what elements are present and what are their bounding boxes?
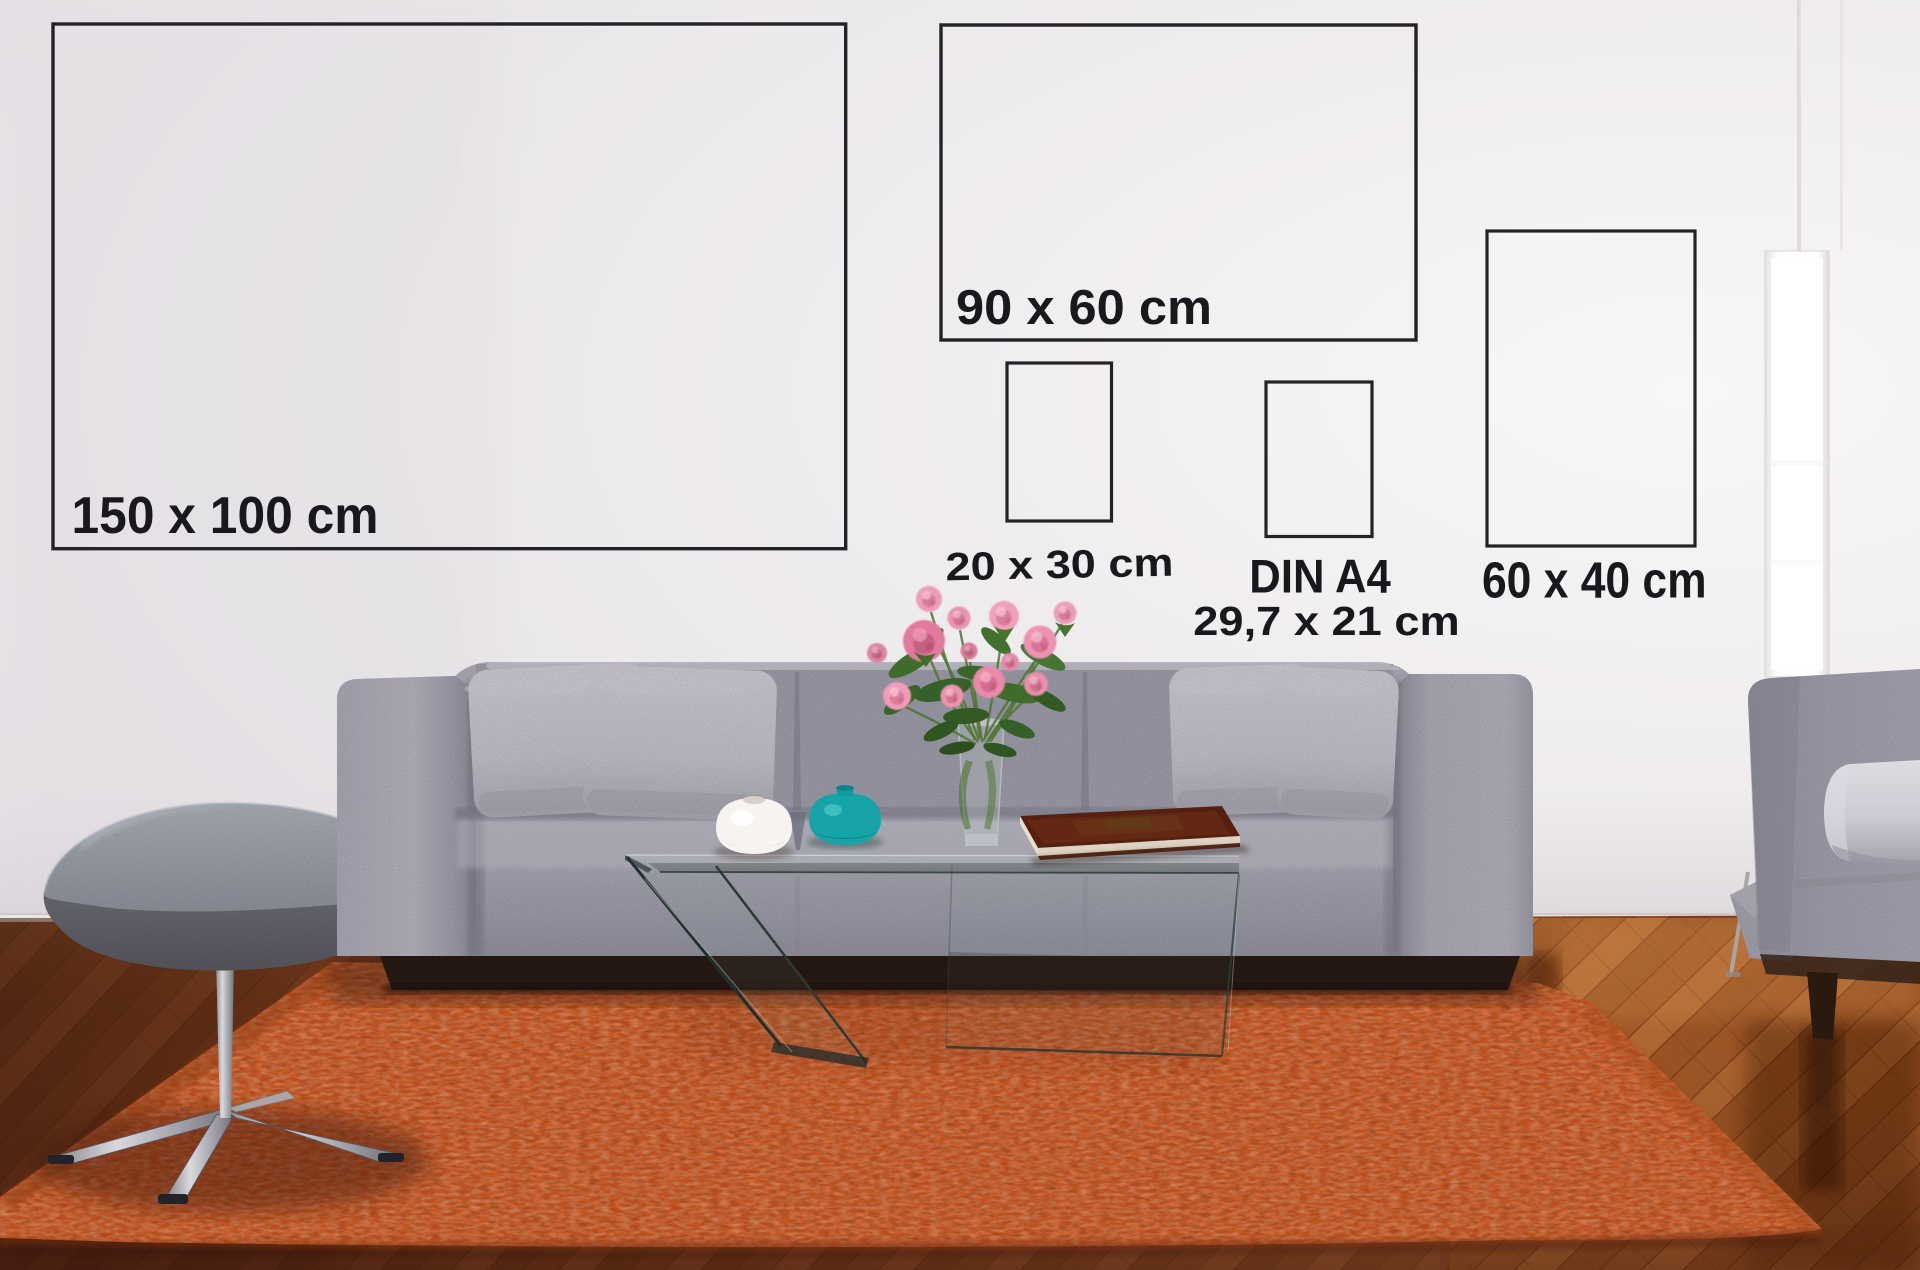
svg-text:DIN A4: DIN A4	[1249, 550, 1391, 603]
svg-text:60 x 40 cm: 60 x 40 cm	[1482, 552, 1707, 609]
svg-text:29,7 x 21 cm: 29,7 x 21 cm	[1193, 598, 1459, 644]
svg-text:20 x 30 cm: 20 x 30 cm	[945, 541, 1174, 590]
svg-text:150 x 100 cm: 150 x 100 cm	[72, 486, 379, 544]
svg-text:90 x 60 cm: 90 x 60 cm	[956, 280, 1212, 335]
